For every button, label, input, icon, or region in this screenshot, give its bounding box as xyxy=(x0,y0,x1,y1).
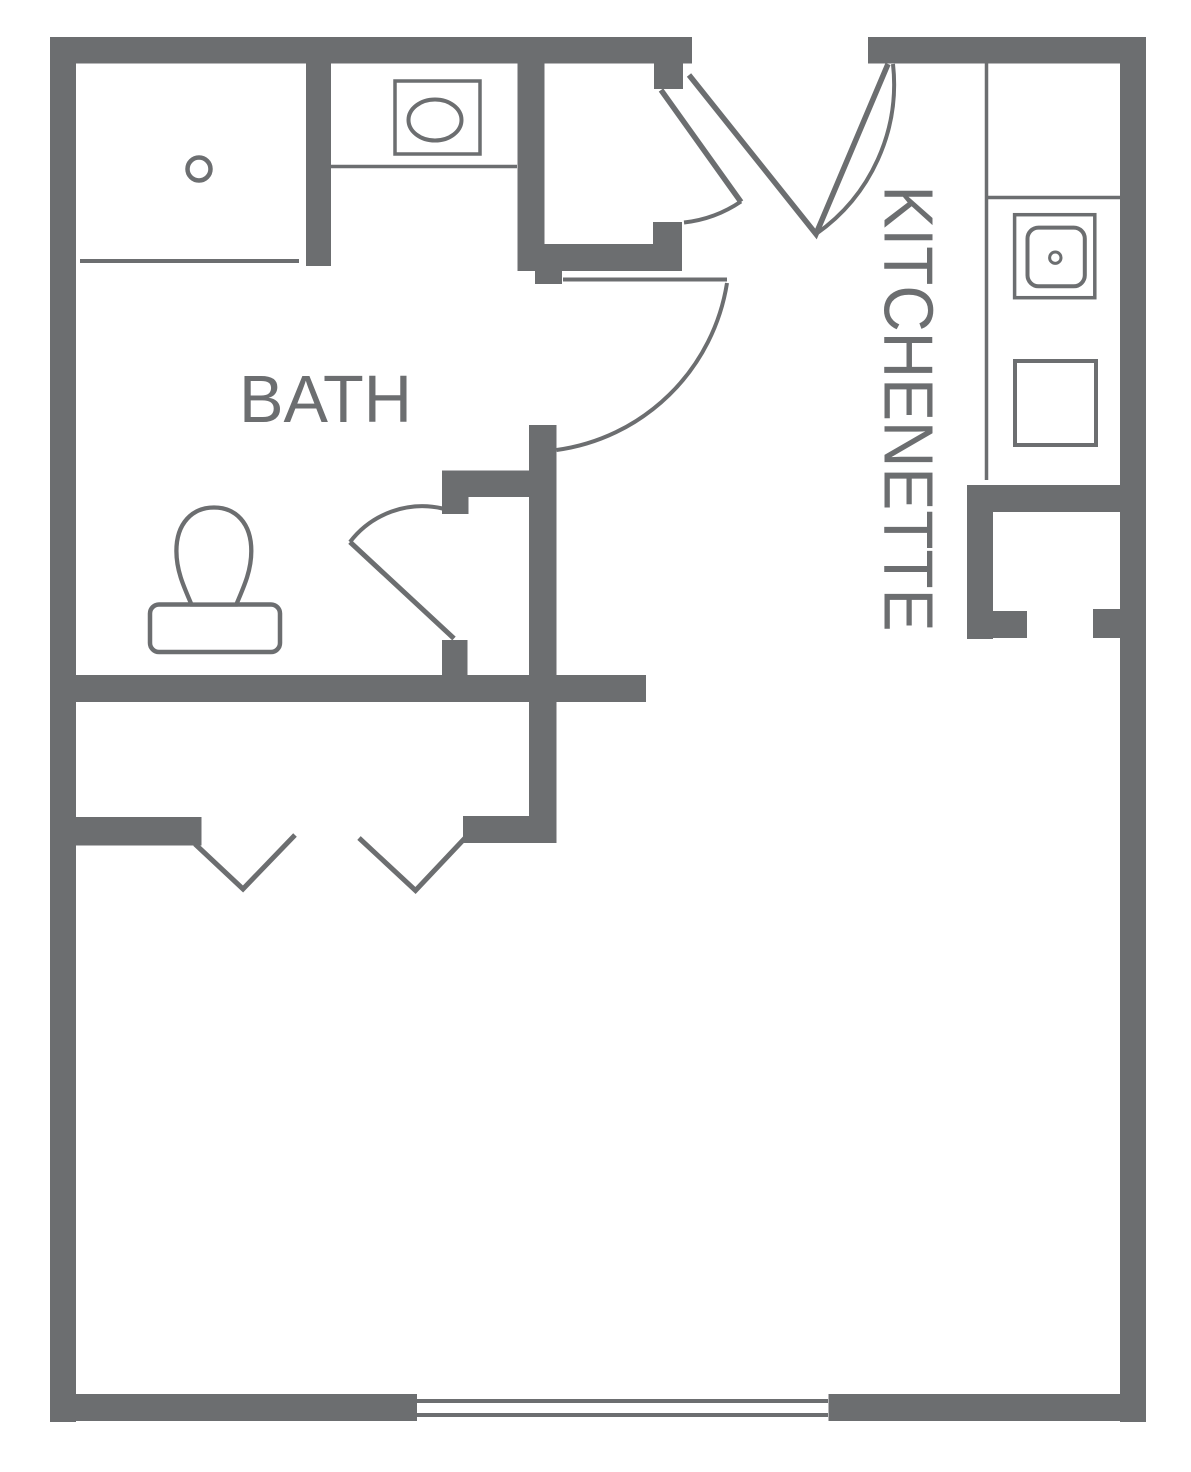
svg-text:BATH: BATH xyxy=(239,362,412,437)
svg-text:KITCHENETTE: KITCHENETTE xyxy=(870,186,948,632)
